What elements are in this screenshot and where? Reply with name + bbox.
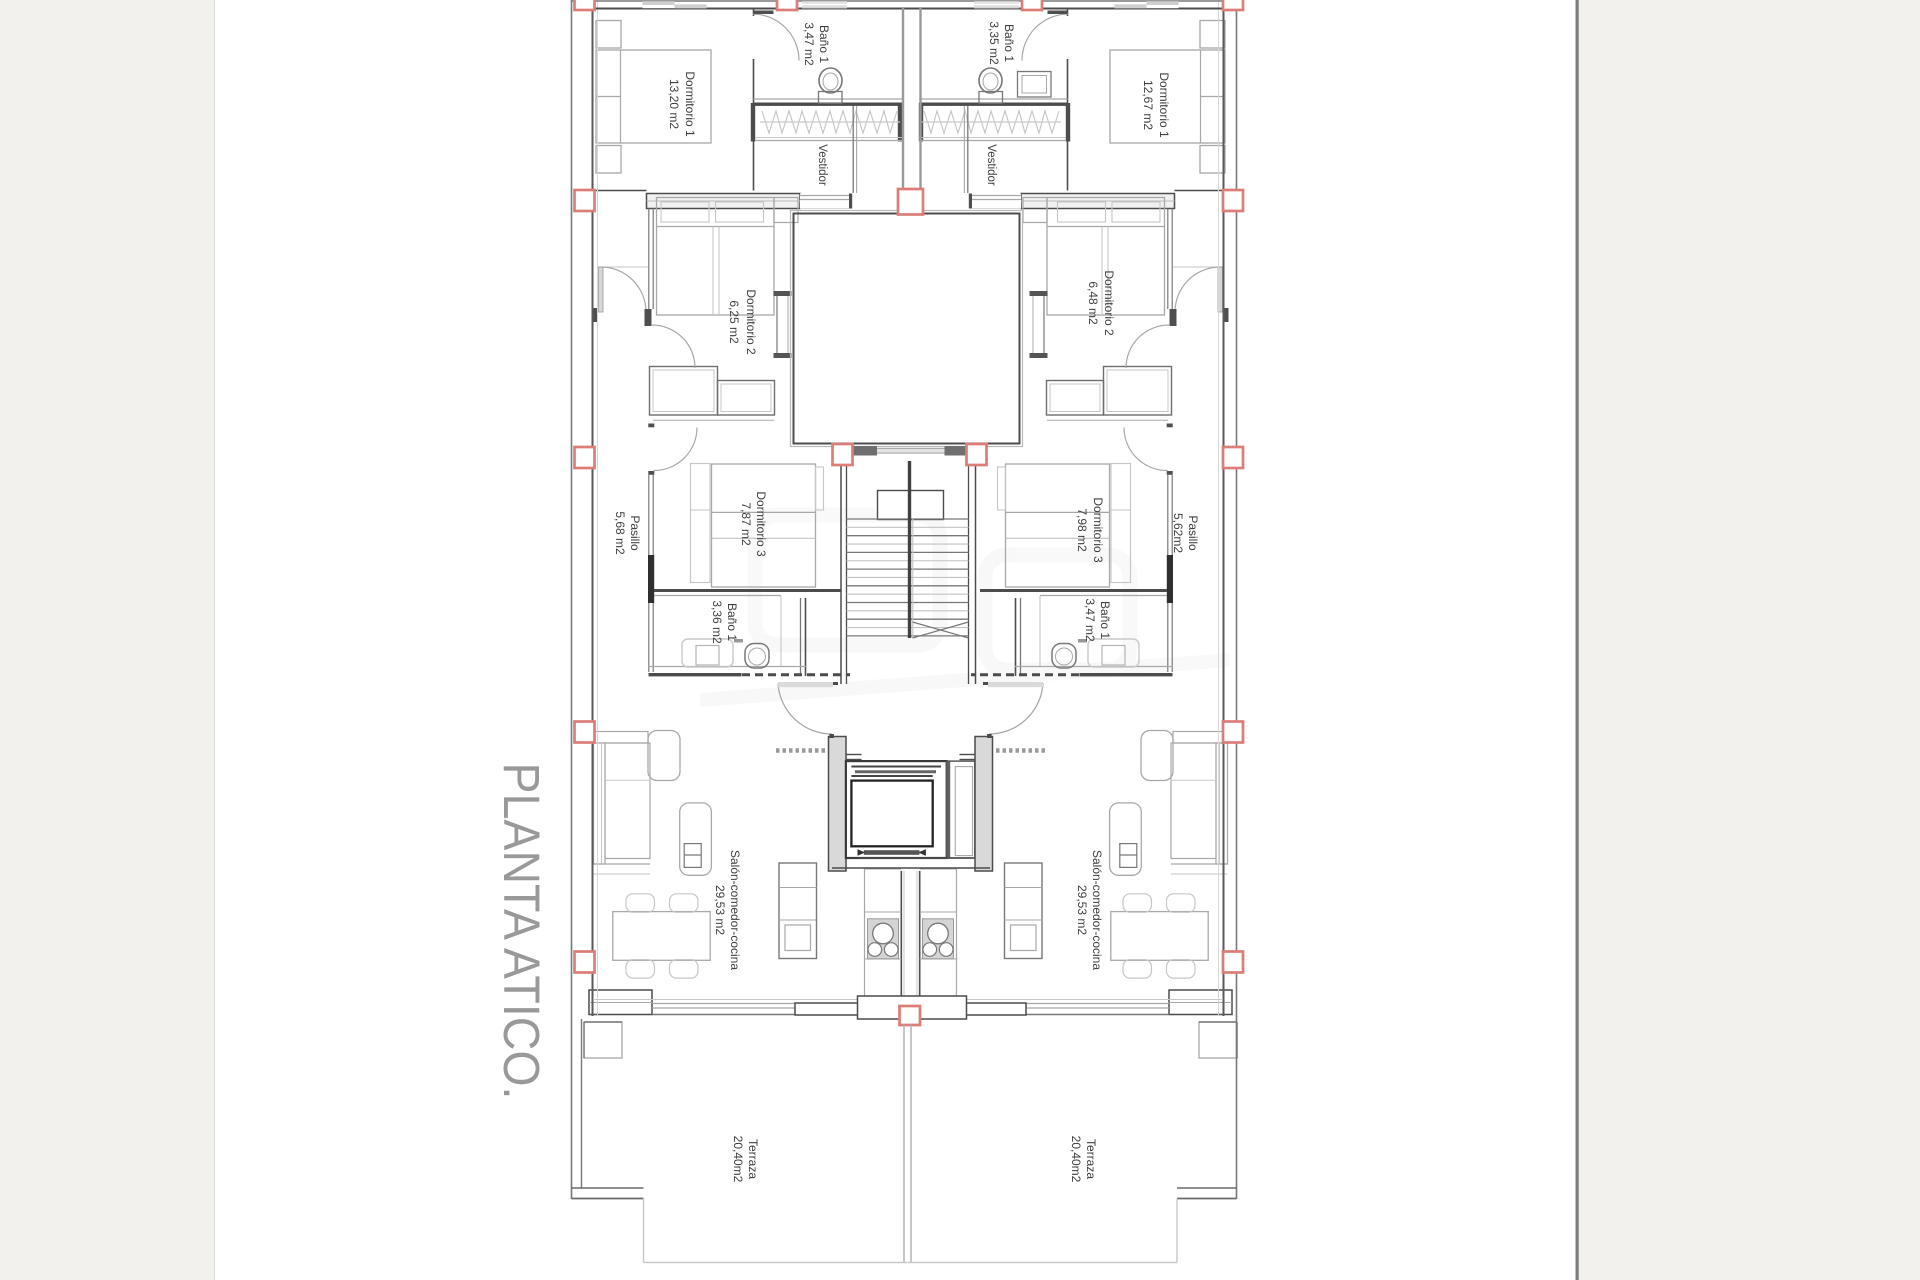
svg-text:PLANTA ATICO.: PLANTA ATICO. [493,763,550,1100]
svg-text:Terraza: Terraza [1084,1139,1098,1179]
svg-text:6,25 m2: 6,25 m2 [727,300,741,344]
svg-text:3,36 m2: 3,36 m2 [710,600,724,644]
svg-text:Baño 1: Baño 1 [1098,601,1112,639]
svg-text:5,68 m2: 5,68 m2 [613,511,627,555]
svg-text:Dormitorio 2: Dormitorio 2 [1102,270,1116,336]
svg-text:Vestidor: Vestidor [985,144,997,186]
svg-text:Baño 1: Baño 1 [817,25,831,63]
svg-text:Baño 1: Baño 1 [1002,24,1016,62]
svg-text:Vestidor: Vestidor [816,144,828,186]
svg-text:Salón-comedor-cocina: Salón-comedor-cocina [1090,850,1104,970]
svg-text:Salón-comedor-cocina: Salón-comedor-cocina [728,850,742,970]
svg-text:20,40m2: 20,40m2 [731,1136,745,1183]
svg-text:6,48 m2: 6,48 m2 [1086,281,1100,325]
svg-text:Dormitorio 1: Dormitorio 1 [1157,72,1171,138]
svg-text:29,53 m2: 29,53 m2 [713,885,727,935]
svg-text:Baño 1: Baño 1 [725,603,739,641]
svg-text:7,98 m2: 7,98 m2 [1075,508,1089,552]
svg-text:Dormitorio 3: Dormitorio 3 [754,491,768,557]
svg-text:7,87 m2: 7,87 m2 [739,502,753,546]
svg-text:Pasillo: Pasillo [1186,515,1200,551]
svg-text:20,40m2: 20,40m2 [1069,1136,1083,1183]
svg-text:12,67 m2: 12,67 m2 [1141,80,1155,130]
svg-text:Terraza: Terraza [746,1139,760,1179]
svg-text:13,20 m2: 13,20 m2 [667,79,681,129]
svg-text:Pasillo: Pasillo [628,515,642,551]
svg-text:3,47 m2: 3,47 m2 [802,22,816,66]
svg-text:Dormitorio 3: Dormitorio 3 [1091,497,1105,563]
svg-text:3,35 m2: 3,35 m2 [987,21,1001,65]
svg-text:Dormitorio 1: Dormitorio 1 [683,71,697,137]
svg-text:Dormitorio 2: Dormitorio 2 [744,289,758,355]
svg-text:5,62m2: 5,62m2 [1171,513,1185,553]
svg-text:3,47 m2: 3,47 m2 [1083,598,1097,642]
svg-text:29,53 m2: 29,53 m2 [1075,885,1089,935]
